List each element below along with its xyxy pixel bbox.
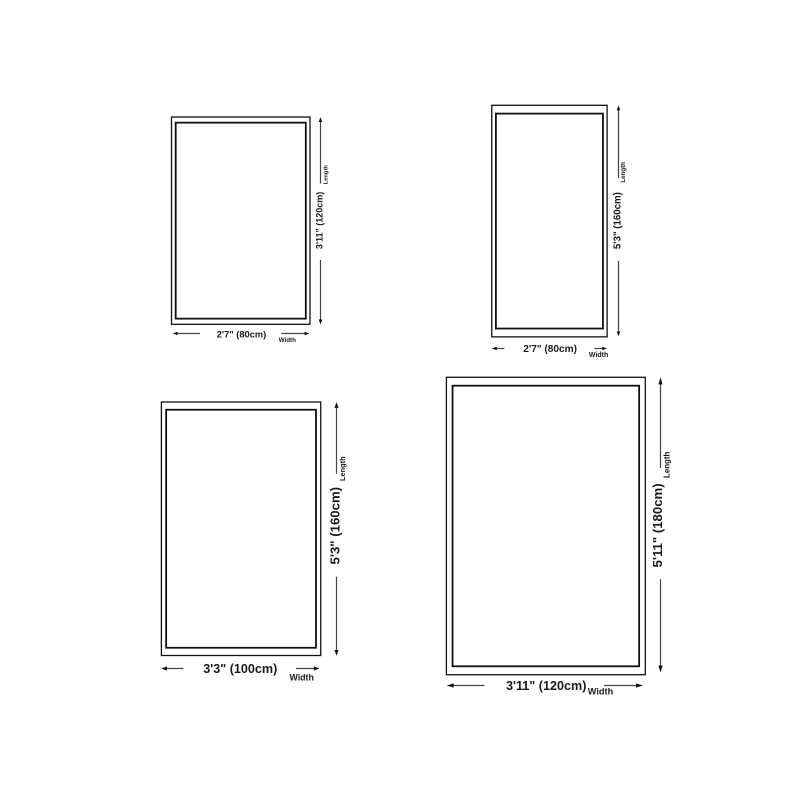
svg-text:5'3" (160cm): 5'3" (160cm) xyxy=(613,192,624,249)
svg-text:5'11" (180cm): 5'11" (180cm) xyxy=(650,483,665,567)
svg-text:2'7" (80cm): 2'7" (80cm) xyxy=(217,329,267,339)
svg-text:Width: Width xyxy=(589,352,608,359)
svg-text:2'7" (80cm): 2'7" (80cm) xyxy=(523,344,577,355)
svg-text:5'3" (160cm): 5'3" (160cm) xyxy=(327,487,342,565)
svg-text:Width: Width xyxy=(588,687,614,697)
svg-text:Width: Width xyxy=(279,337,296,344)
svg-text:Width: Width xyxy=(290,672,314,682)
svg-text:Length: Length xyxy=(324,165,330,185)
svg-text:3'3" (100cm): 3'3" (100cm) xyxy=(203,662,277,676)
svg-text:Length: Length xyxy=(662,452,671,478)
svg-text:Length: Length xyxy=(620,162,627,183)
svg-text:Length: Length xyxy=(338,456,347,481)
svg-text:3'11" (120cm): 3'11" (120cm) xyxy=(506,679,586,693)
svg-text:3'11" (120cm): 3'11" (120cm) xyxy=(315,192,325,249)
